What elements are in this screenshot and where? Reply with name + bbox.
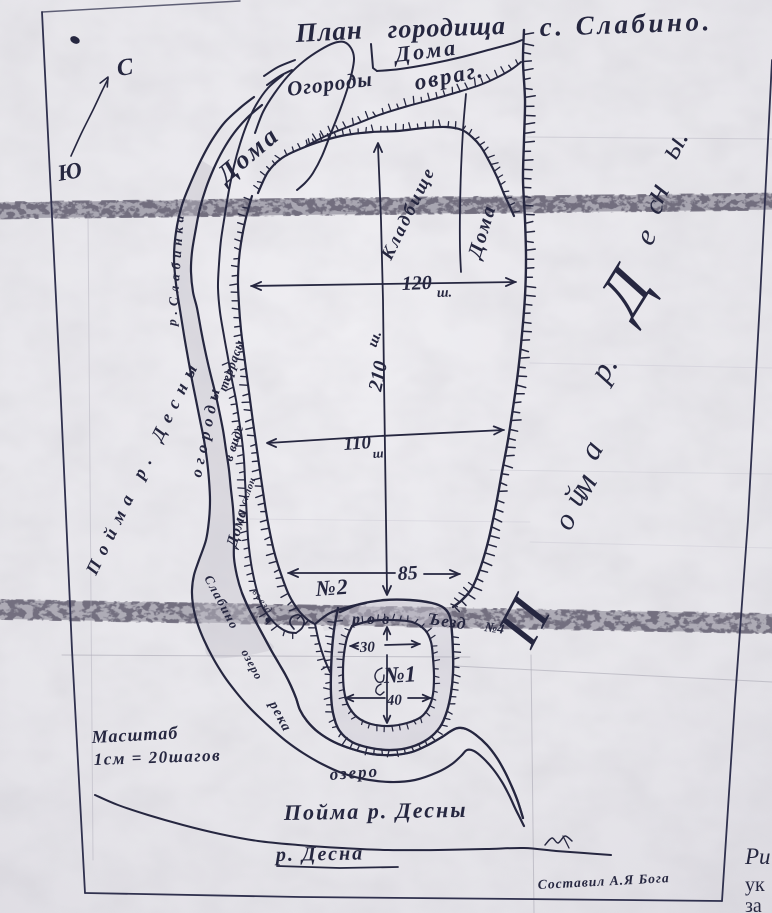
svg-text:ш: ш <box>372 445 384 461</box>
svg-text:30: 30 <box>359 639 376 656</box>
svg-text:с. Слабино.: с. Слабино. <box>539 6 713 42</box>
svg-text:110: 110 <box>343 432 372 455</box>
svg-text:Пойма р. Десны: Пойма р. Десны <box>283 797 468 825</box>
svg-text:ук: ук <box>745 874 765 896</box>
svg-text:за: за <box>745 895 762 913</box>
svg-text:Ри: Ри <box>744 844 771 869</box>
svg-text:ров: ров <box>350 611 396 628</box>
svg-text:ш.: ш. <box>437 285 453 301</box>
svg-text:120: 120 <box>401 272 432 295</box>
svg-text:85: 85 <box>397 562 418 585</box>
svg-text:План: План <box>294 15 364 49</box>
svg-text:№1: №1 <box>382 661 417 688</box>
svg-text:40: 40 <box>386 692 403 709</box>
svg-text:Ю: Ю <box>55 157 84 186</box>
svg-text:№2: №2 <box>314 574 350 601</box>
svg-text:озеро: озеро <box>329 762 380 784</box>
